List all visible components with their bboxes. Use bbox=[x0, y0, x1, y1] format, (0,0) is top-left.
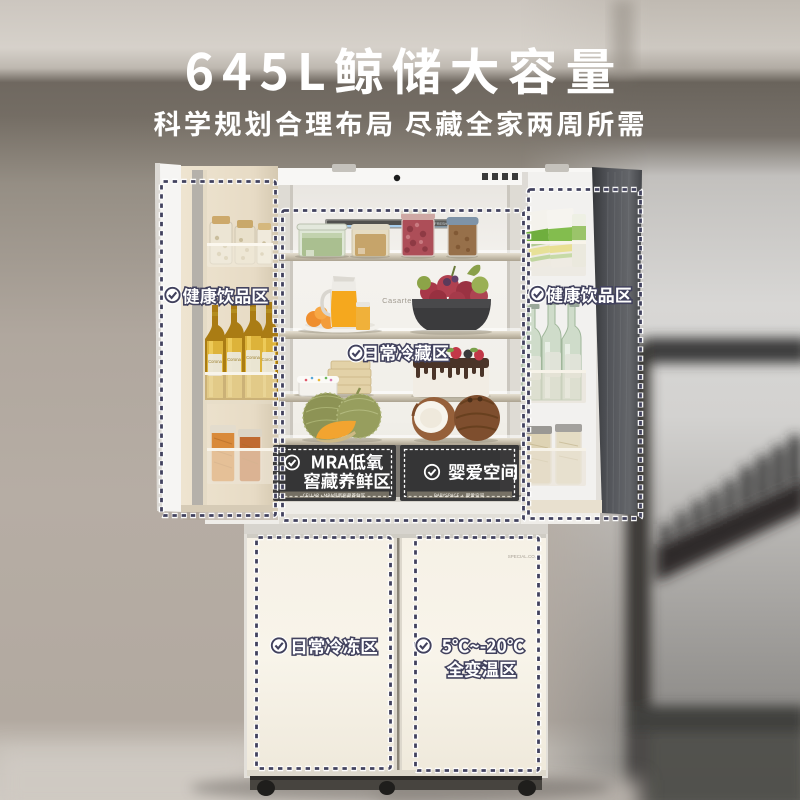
svg-text:BABYSPACE · 婴爱空间: BABYSPACE · 婴爱空间 bbox=[434, 493, 485, 499]
svg-text:CELLAR·MRA低氧窖藏养鲜区: CELLAR·MRA低氧窖藏养鲜区 bbox=[303, 493, 366, 499]
svg-text:科学规划合理布局 尽藏全家两周所需: 科学规划合理布局 尽藏全家两周所需 bbox=[154, 102, 645, 142]
svg-text:全变温区: 全变温区 bbox=[447, 657, 517, 682]
svg-text:健康饮品区: 健康饮品区 bbox=[546, 282, 632, 307]
svg-text:日常冷藏区: 日常冷藏区 bbox=[362, 341, 450, 366]
svg-text:5℃~-20℃: 5℃~-20℃ bbox=[442, 634, 525, 659]
svg-text:645L鲸储大容量: 645L鲸储大容量 bbox=[185, 33, 616, 105]
svg-text:健康饮品区: 健康饮品区 bbox=[183, 283, 269, 308]
svg-text:SPECIAL.CO.: SPECIAL.CO. bbox=[508, 554, 536, 559]
svg-text:婴爱空间: 婴爱空间 bbox=[448, 460, 518, 485]
svg-text:日常冷冻区: 日常冷冻区 bbox=[290, 634, 378, 659]
svg-text:Corona: Corona bbox=[227, 357, 241, 362]
svg-text:Casarte: Casarte bbox=[382, 296, 412, 305]
svg-text:Corona: Corona bbox=[246, 355, 260, 360]
svg-text:窖藏养鲜区: 窖藏养鲜区 bbox=[303, 469, 391, 494]
svg-text:Corona: Corona bbox=[208, 359, 222, 364]
